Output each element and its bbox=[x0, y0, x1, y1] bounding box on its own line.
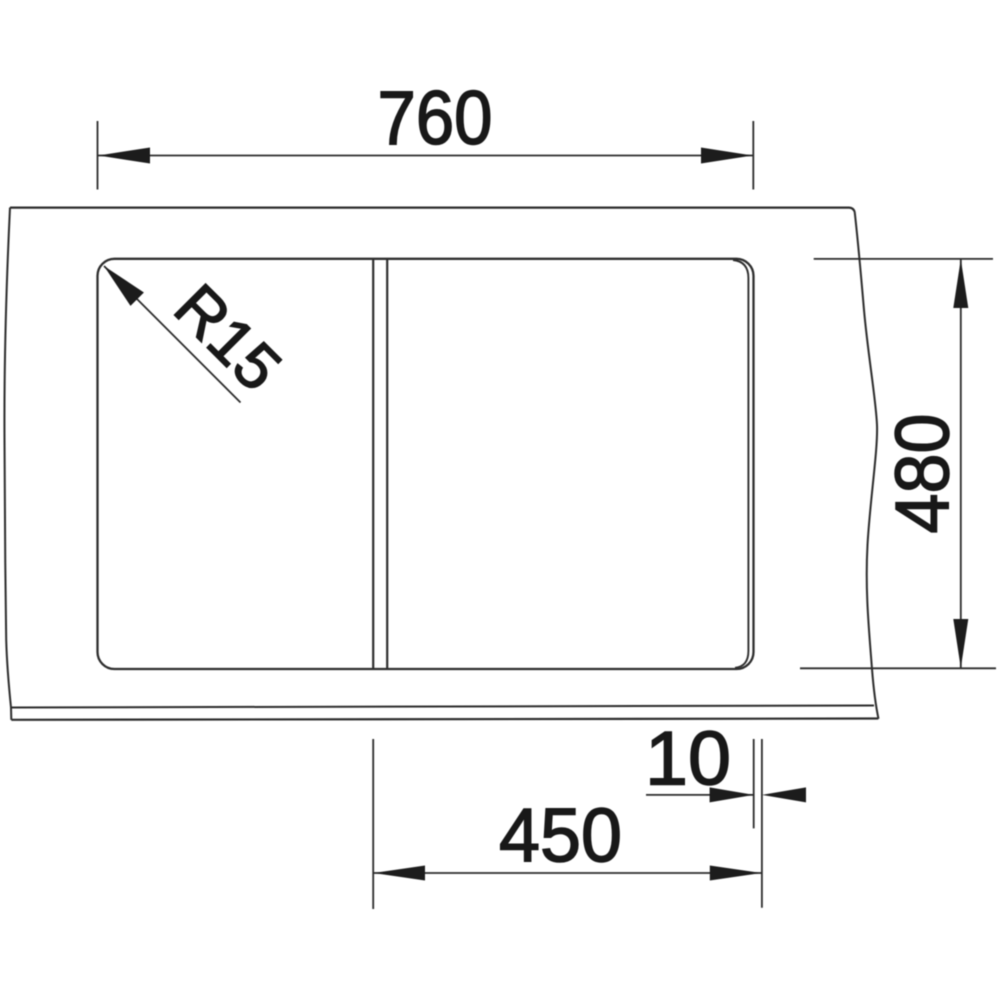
svg-text:480: 480 bbox=[881, 414, 966, 534]
svg-text:450: 450 bbox=[499, 794, 622, 879]
svg-text:10: 10 bbox=[645, 717, 731, 802]
svg-text:760: 760 bbox=[378, 76, 493, 161]
